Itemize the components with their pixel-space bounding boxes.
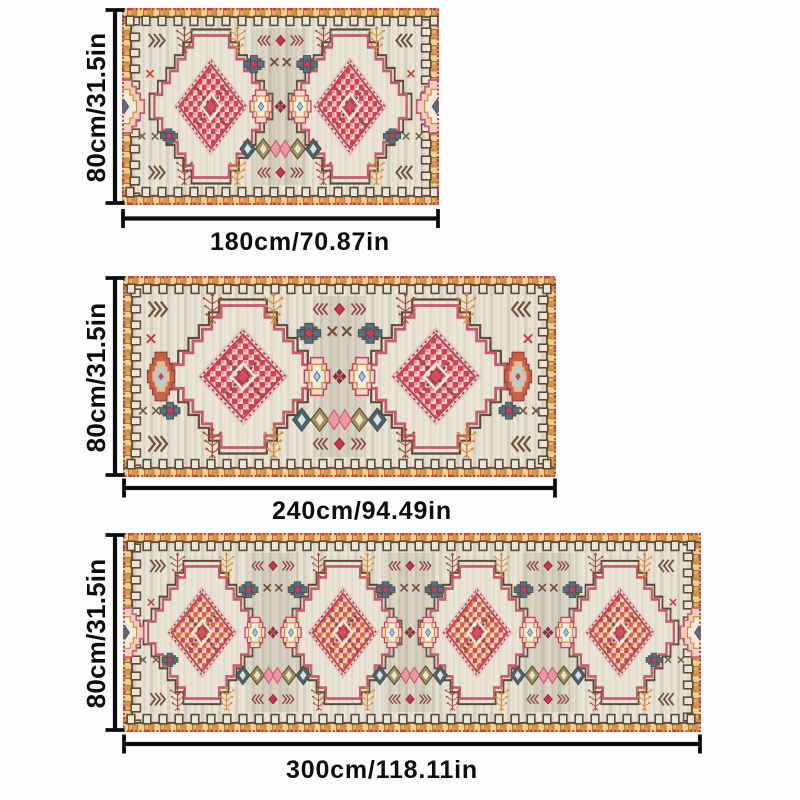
svg-text:180cm/70.87in: 180cm/70.87in xyxy=(210,228,390,256)
svg-text:80cm/31.5in: 80cm/31.5in xyxy=(81,33,111,183)
svg-text:300cm/118.11in: 300cm/118.11in xyxy=(286,756,478,784)
svg-text:80cm/31.5in: 80cm/31.5in xyxy=(81,303,111,453)
svg-text:80cm/31.5in: 80cm/31.5in xyxy=(81,559,111,709)
svg-text:240cm/94.49in: 240cm/94.49in xyxy=(272,497,452,525)
